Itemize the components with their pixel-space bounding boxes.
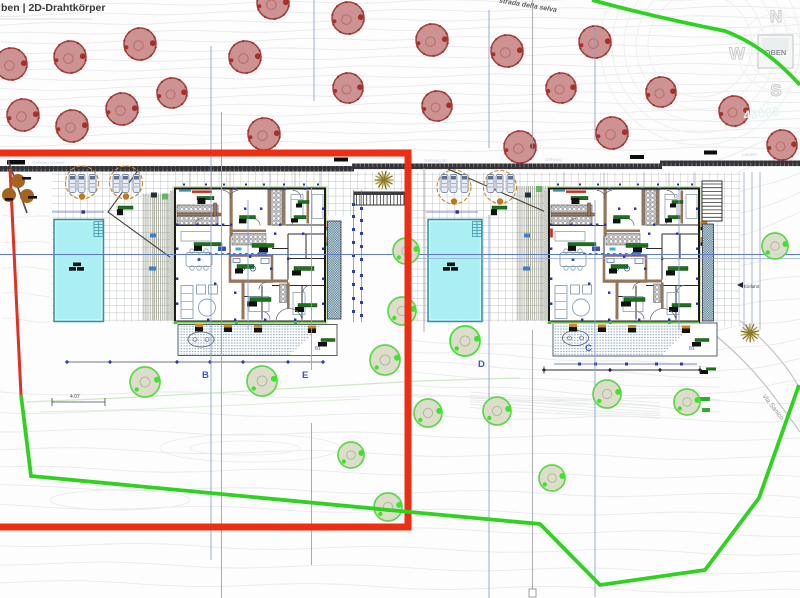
svg-text:W: W bbox=[729, 44, 746, 63]
svg-text:Gehweg str.: Gehweg str. bbox=[424, 158, 448, 163]
svg-text:Gehweg: Gehweg bbox=[545, 157, 562, 162]
svg-text:Landstr.: Landstr. bbox=[742, 152, 758, 157]
svg-text:Einfahrt: Einfahrt bbox=[744, 284, 760, 289]
svg-text:C: C bbox=[585, 343, 592, 354]
svg-text:D: D bbox=[478, 359, 485, 370]
svg-text:N: N bbox=[770, 7, 782, 26]
svg-text:Gehweg strasse: Gehweg strasse bbox=[32, 160, 65, 165]
svg-text:ben | 2D-Drahtkörper: ben | 2D-Drahtkörper bbox=[1, 2, 105, 14]
svg-text:E: E bbox=[302, 370, 308, 381]
svg-text:B1: B1 bbox=[315, 346, 321, 351]
svg-text:B1: B1 bbox=[689, 346, 695, 351]
svg-text:4.07: 4.07 bbox=[70, 394, 80, 400]
svg-text:B: B bbox=[202, 370, 209, 381]
svg-text:S: S bbox=[770, 81, 781, 100]
